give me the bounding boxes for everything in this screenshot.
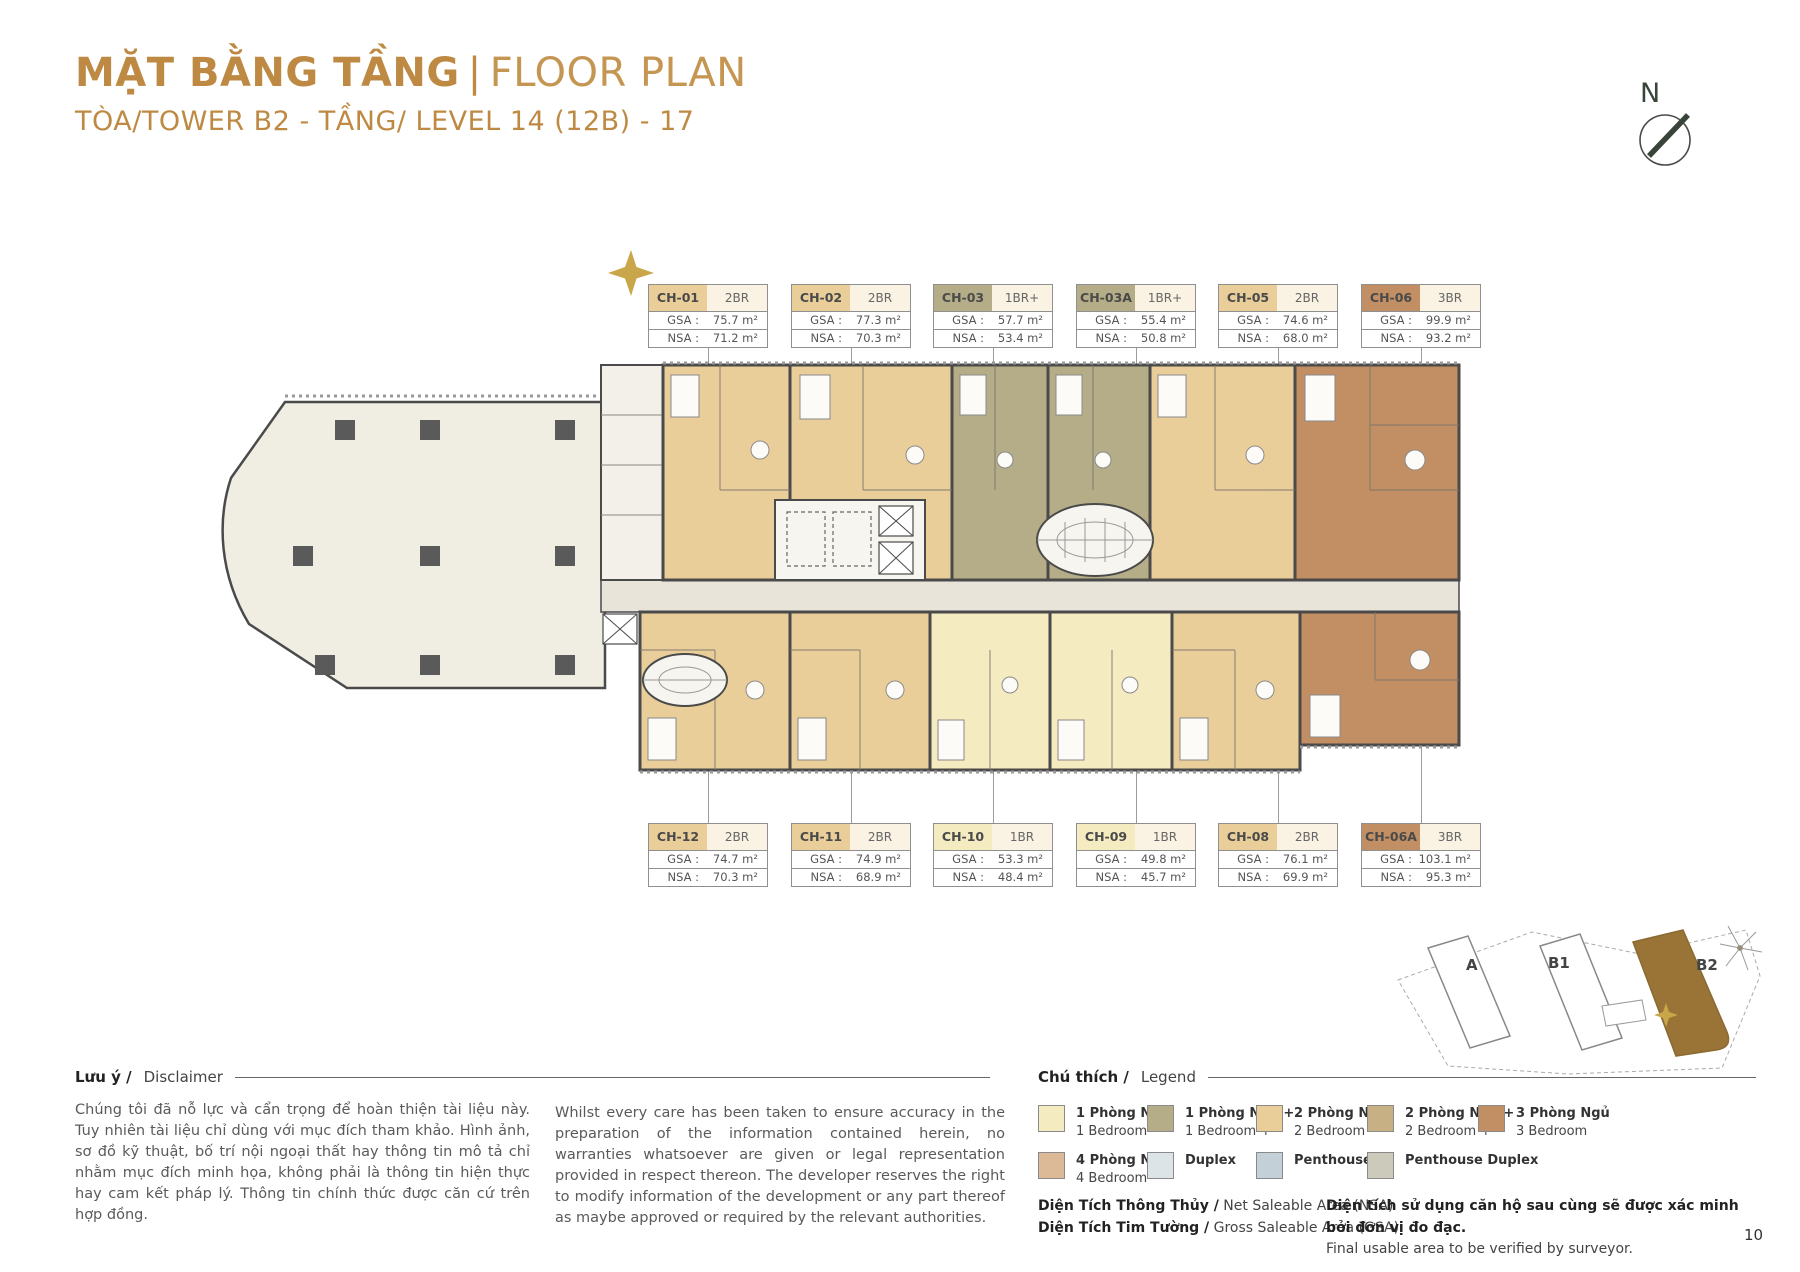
unit-card-ch-03a: CH-03A1BR+ GSA :55.4 m² NSA :50.8 m² [1076,284,1196,348]
nsa-value: 95.3 m² [1412,869,1480,886]
gsa-value: 74.7 m² [699,851,767,868]
gsa-value: 75.7 m² [699,312,767,329]
nsa-row: NSA :93.2 m² [1362,329,1480,347]
unit-code: CH-03A [1077,285,1135,311]
gsa-row: GSA :75.7 m² [649,311,767,329]
legend-heading-vi: Chú thích / [1038,1068,1129,1086]
gsa-row: GSA :74.7 m² [649,850,767,868]
unit-code: CH-06A [1362,824,1420,850]
nsa-value: 70.3 m² [699,869,767,886]
unit-card-ch-12: CH-122BR GSA :74.7 m² NSA :70.3 m² [648,823,768,887]
gsa-row: GSA :99.9 m² [1362,311,1480,329]
gsa-row: GSA :77.3 m² [792,311,910,329]
gsa-value: 103.1 m² [1412,851,1480,868]
disclaimer-heading-vi: Lưu ý / [75,1068,132,1086]
unit-type: 3BR [1420,285,1480,311]
unit-code: CH-06 [1362,285,1420,311]
nsa-row: NSA :50.8 m² [1077,329,1195,347]
legend-heading: Chú thích / Legend [1038,1068,1756,1086]
keyplan-tower-b2 [1633,930,1729,1056]
legend-item: Penthouse Duplex [1367,1152,1538,1179]
gsa-row: GSA :74.6 m² [1219,311,1337,329]
unit-type: 3BR [1420,824,1480,850]
unit-code: CH-03 [934,285,992,311]
unit-type: 2BR [850,285,910,311]
nsa-row: NSA :69.9 m² [1219,868,1337,886]
unit-card-ch-03: CH-031BR+ GSA :57.7 m² NSA :53.4 m² [933,284,1053,348]
nsa-row: NSA :70.3 m² [792,329,910,347]
legend-item: Penthouse [1256,1152,1372,1179]
unit-type: 2BR [1277,824,1337,850]
site-key-plan: A B1 B2 [1390,918,1770,1083]
unit-card-ch-06a: CH-06A3BR GSA :103.1 m² NSA :95.3 m² [1361,823,1481,887]
nsa-row: NSA :68.0 m² [1219,329,1337,347]
north-compass-icon: N [1628,66,1728,181]
nsa-row: NSA :53.4 m² [934,329,1052,347]
gsa-value: 77.3 m² [842,312,910,329]
disclaimer-text-en: Whilst every care has been taken to ensu… [555,1103,1005,1229]
legend-item: 3 Phòng Ngủ3 Bedroom [1478,1105,1610,1140]
keyplan-compass-icon [1720,926,1762,970]
keyplan-label-a: A [1466,956,1478,974]
nsa-row: NSA :48.4 m² [934,868,1052,886]
north-label: N [1640,78,1660,109]
unit-card-ch-08: CH-082BR GSA :76.1 m² NSA :69.9 m² [1218,823,1338,887]
unit-card-ch-05: CH-052BR GSA :74.6 m² NSA :68.0 m² [1218,284,1338,348]
page-title-vi: MẶT BẰNG TẦNG [75,50,460,96]
legend-swatch [1038,1105,1065,1132]
page-title-en: FLOOR PLAN [490,50,747,96]
unit-card-ch-02: CH-022BR GSA :77.3 m² NSA :70.3 m² [791,284,911,348]
unit-type: 2BR [707,824,767,850]
unit-type: 1BR [1135,824,1195,850]
gsa-value: 74.9 m² [842,851,910,868]
gsa-value: 76.1 m² [1269,851,1337,868]
nsa-value: 53.4 m² [984,330,1052,347]
legend-swatch [1147,1152,1174,1179]
disclaimer-text-vi: Chúng tôi đã nỗ lực và cẩn trọng để hoàn… [75,1100,530,1226]
unit-code: CH-08 [1219,824,1277,850]
heading-rule [1208,1077,1756,1078]
unit-card-ch-09: CH-091BR GSA :49.8 m² NSA :45.7 m² [1076,823,1196,887]
page-title: MẶT BẰNG TẦNG|FLOOR PLAN [75,50,747,96]
nsa-value: 68.9 m² [842,869,910,886]
nsa-row: NSA :70.3 m² [649,868,767,886]
legend-swatch [1256,1105,1283,1132]
nsa-value: 68.0 m² [1269,330,1337,347]
nsa-value: 70.3 m² [842,330,910,347]
gsa-row: GSA :49.8 m² [1077,850,1195,868]
gsa-value: 57.7 m² [984,312,1052,329]
unit-code: CH-05 [1219,285,1277,311]
disclaimer-heading: Lưu ý / Disclaimer [75,1068,990,1086]
elevator-core [775,500,925,580]
utility-rooms [601,365,663,580]
unit-type: 1BR+ [992,285,1052,311]
unit-type: 2BR [707,285,767,311]
legend-item: Duplex [1147,1152,1236,1179]
gsa-value: 55.4 m² [1127,312,1195,329]
legend-heading-en: Legend [1141,1068,1196,1086]
legend-swatch [1038,1152,1065,1179]
legend-swatch [1256,1152,1283,1179]
legend-swatch [1367,1152,1394,1179]
keyplan-tower-b1 [1540,934,1622,1050]
nsa-value: 45.7 m² [1127,869,1195,886]
page-subtitle: TÒA/TOWER B2 - TẦNG/ LEVEL 14 (12B) - 17 [75,106,694,137]
nsa-value: 71.2 m² [699,330,767,347]
unit-card-ch-06: CH-063BR GSA :99.9 m² NSA :93.2 m² [1361,284,1481,348]
floor-plan-page: MẶT BẰNG TẦNG|FLOOR PLAN TÒA/TOWER B2 - … [0,0,1800,1272]
gsa-row: GSA :53.3 m² [934,850,1052,868]
unit-code: CH-12 [649,824,707,850]
gsa-value: 74.6 m² [1269,312,1337,329]
corridor [601,580,1459,612]
gsa-row: GSA :74.9 m² [792,850,910,868]
nsa-value: 48.4 m² [984,869,1052,886]
stair-core [1037,504,1153,576]
title-divider: | [460,50,490,96]
nsa-value: 50.8 m² [1127,330,1195,347]
unit-type: 2BR [1277,285,1337,311]
gsa-value: 99.9 m² [1412,312,1480,329]
unit-code: CH-01 [649,285,707,311]
compass-needle [1649,115,1688,156]
unit-type: 1BR [992,824,1052,850]
legend-swatch [1478,1105,1505,1132]
nsa-row: NSA :45.7 m² [1077,868,1195,886]
nsa-row: NSA :68.9 m² [792,868,910,886]
gsa-row: GSA :57.7 m² [934,311,1052,329]
unit-card-ch-11: CH-112BR GSA :74.9 m² NSA :68.9 m² [791,823,911,887]
legend-swatch [1147,1105,1174,1132]
disclaimer-heading-en: Disclaimer [144,1068,223,1086]
unit-card-ch-01: CH-012BR GSA :75.7 m² NSA :71.2 m² [648,284,768,348]
gsa-value: 53.3 m² [984,851,1052,868]
left-wing [223,402,605,688]
legend-swatch [1367,1105,1394,1132]
gsa-row: GSA :76.1 m² [1219,850,1337,868]
keyplan-label-b2: B2 [1696,956,1718,974]
heading-rule [235,1077,990,1078]
nsa-value: 69.9 m² [1269,869,1337,886]
page-number: 10 [1744,1226,1763,1244]
unit-code: CH-11 [792,824,850,850]
keyplan-tower-a [1428,936,1510,1048]
nsa-row: NSA :95.3 m² [1362,868,1480,886]
gsa-value: 49.8 m² [1127,851,1195,868]
nsa-row: NSA :71.2 m² [649,329,767,347]
survey-note: Diện tích sử dụng căn hộ sau cùng sẽ đượ… [1326,1196,1766,1261]
unit-code: CH-02 [792,285,850,311]
unit-code: CH-09 [1077,824,1135,850]
gsa-row: GSA :55.4 m² [1077,311,1195,329]
unit-type: 1BR+ [1135,285,1195,311]
keyplan-label-b1: B1 [1548,954,1570,972]
unit-code: CH-10 [934,824,992,850]
nsa-value: 93.2 m² [1412,330,1480,347]
unit-card-ch-10: CH-101BR GSA :53.3 m² NSA :48.4 m² [933,823,1053,887]
gsa-row: GSA :103.1 m² [1362,850,1480,868]
floor-plan-drawing [215,350,1465,780]
unit-type: 2BR [850,824,910,850]
